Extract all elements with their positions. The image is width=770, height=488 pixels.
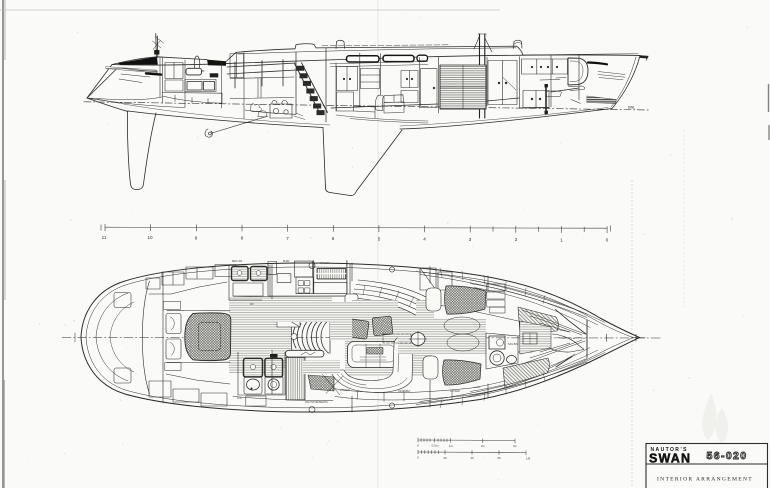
svg-text:NAV INSTRUMENTS: NAV INSTRUMENTS (305, 401, 328, 404)
svg-text:4: 4 (423, 237, 426, 242)
svg-text:10: 10 (147, 235, 153, 240)
svg-text:BED.LKR: BED.LKR (232, 260, 243, 263)
svg-text:GALLEY: GALLEY (320, 262, 330, 265)
svg-text:DWL: DWL (628, 106, 635, 110)
svg-text:1: 1 (560, 238, 563, 243)
svg-text:6: 6 (332, 236, 335, 241)
svg-text:ASSEMBLY: ASSEMBLY (398, 390, 411, 393)
svg-text:LOCKER: LOCKER (340, 389, 350, 392)
svg-text:2m: 2m (481, 444, 486, 448)
svg-text:11: 11 (102, 235, 107, 240)
svg-text:SAIL BIN: SAIL BIN (508, 343, 518, 346)
svg-text:7: 7 (286, 236, 289, 241)
svg-text:0.5m: 0.5m (432, 444, 439, 448)
svg-text:4ft: 4ft (470, 456, 474, 460)
svg-text:8: 8 (241, 236, 244, 241)
svg-text:6ft: 6ft (497, 456, 501, 460)
svg-text:INTERIOR ARRANGEMENT: INTERIOR ARRANGEMENT (657, 477, 753, 483)
svg-text:3m: 3m (513, 444, 518, 448)
svg-text:LOCKER: LOCKER (450, 390, 460, 393)
svg-text:56-020: 56-020 (707, 450, 747, 462)
svg-text:0: 0 (606, 238, 609, 243)
svg-text:2ft: 2ft (443, 456, 447, 460)
svg-text:3: 3 (469, 237, 472, 242)
svg-text:BLRD: BLRD (283, 260, 290, 263)
svg-text:5: 5 (378, 237, 381, 242)
svg-text:1/8: 1/8 (526, 456, 531, 460)
svg-text:1m: 1m (449, 444, 454, 448)
svg-text:SWAN: SWAN (649, 451, 690, 465)
svg-text:9: 9 (195, 236, 198, 241)
svg-text:LKR: LKR (237, 397, 242, 400)
svg-text:2: 2 (515, 237, 518, 242)
svg-text:WC: WC (250, 303, 254, 306)
